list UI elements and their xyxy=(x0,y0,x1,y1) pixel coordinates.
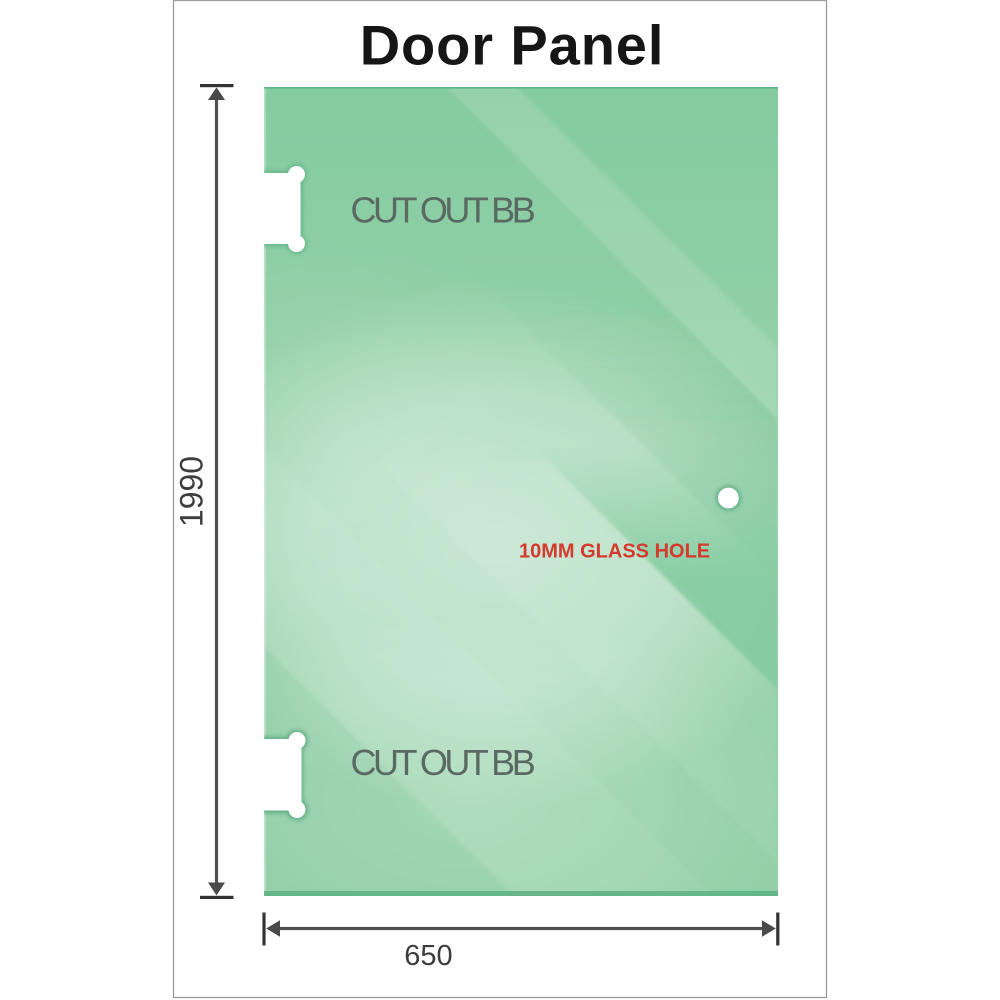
svg-text:CUT OUT BB: CUT OUT BB xyxy=(351,190,535,231)
svg-text:CUT OUT BB: CUT OUT BB xyxy=(351,742,535,783)
svg-text:10MM GLASS HOLE: 10MM GLASS HOLE xyxy=(519,541,710,563)
svg-text:650: 650 xyxy=(404,940,452,972)
svg-text:1990: 1990 xyxy=(174,456,210,527)
svg-text:Door Panel: Door Panel xyxy=(360,14,665,77)
